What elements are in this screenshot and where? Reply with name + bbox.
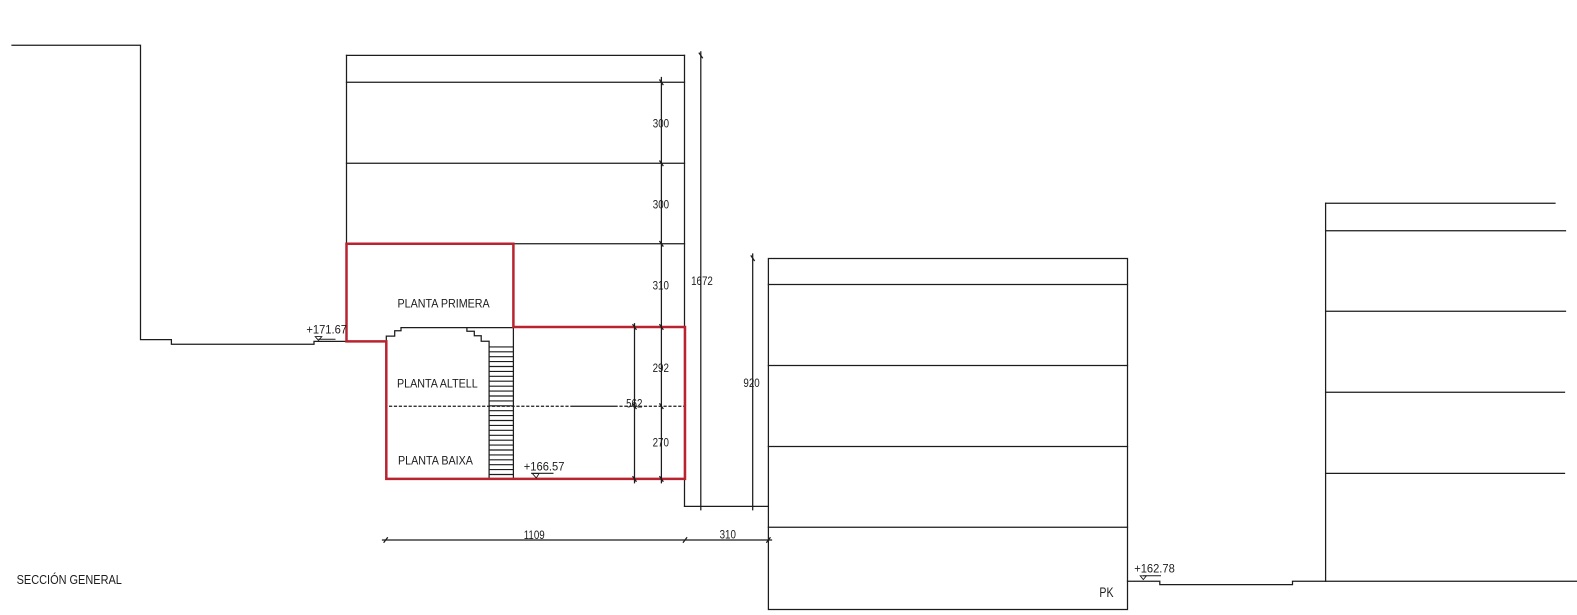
svg-text:1672: 1672	[691, 275, 713, 288]
svg-text:PLANTA BAIXA: PLANTA BAIXA	[398, 455, 473, 468]
svg-text:PK: PK	[1099, 585, 1113, 601]
svg-text:292: 292	[653, 362, 669, 375]
svg-text:562: 562	[626, 398, 642, 411]
svg-text:+171.67: +171.67	[306, 323, 347, 337]
svg-text:SECCIÓN GENERAL: SECCIÓN GENERAL	[17, 572, 123, 587]
svg-text:1109: 1109	[524, 529, 545, 542]
svg-text:310: 310	[720, 528, 736, 541]
svg-text:PLANTA ALTELL: PLANTA ALTELL	[397, 378, 478, 391]
svg-text:+166.57: +166.57	[524, 460, 565, 474]
svg-text:+162.78: +162.78	[1134, 562, 1175, 576]
svg-text:300: 300	[653, 199, 669, 212]
svg-text:920: 920	[743, 377, 759, 390]
svg-text:270: 270	[653, 437, 669, 450]
svg-text:300: 300	[653, 117, 669, 130]
svg-text:310: 310	[653, 279, 669, 292]
svg-text:PLANTA PRIMERA: PLANTA PRIMERA	[398, 298, 491, 311]
